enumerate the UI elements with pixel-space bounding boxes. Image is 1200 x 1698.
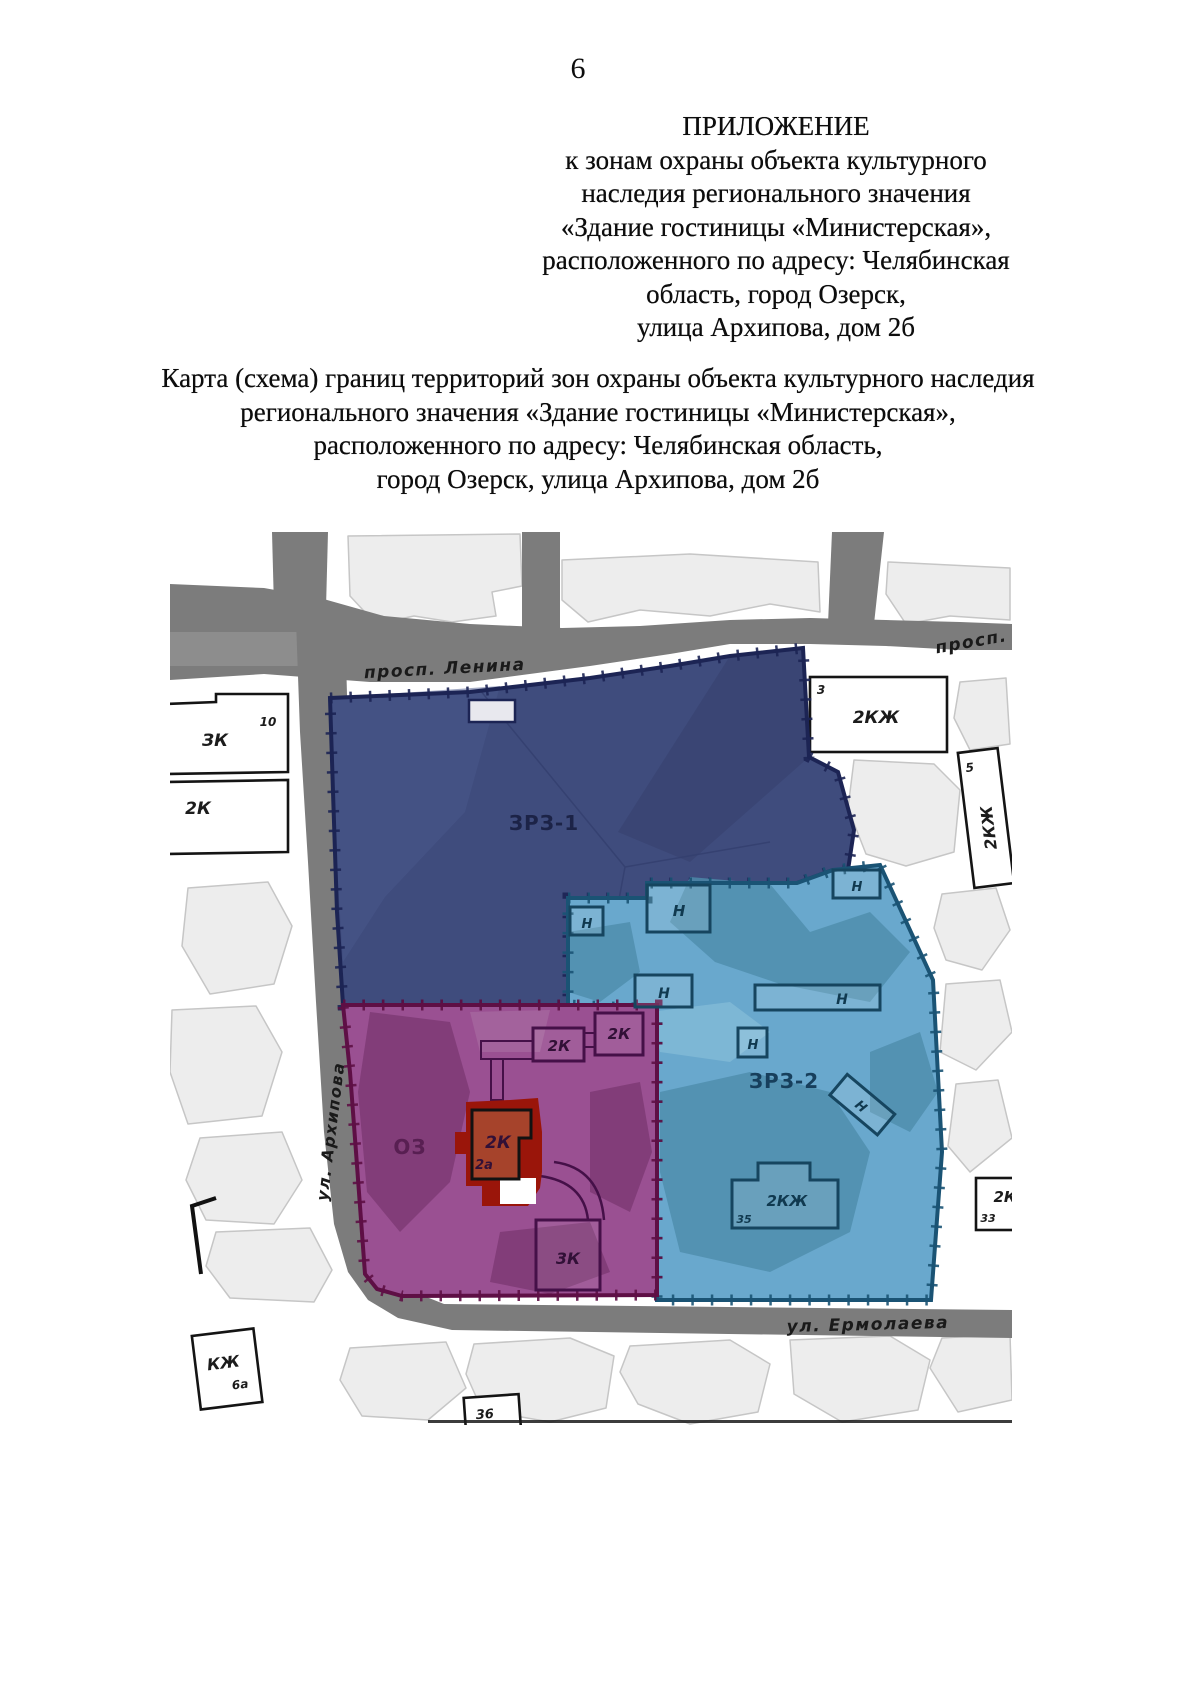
map-edge-line bbox=[428, 1420, 1012, 1423]
appendix-line: расположенного по адресу: Челябинская bbox=[540, 244, 1012, 278]
building-number: 5 bbox=[965, 760, 975, 775]
building-label: Н bbox=[852, 880, 863, 895]
building-3k-left bbox=[170, 694, 288, 774]
zone-label-zrz1: ЗРЗ-1 bbox=[509, 811, 579, 835]
appendix-line: улица Архипова, дом 2б bbox=[540, 311, 1012, 345]
building-label: 2К bbox=[608, 1025, 631, 1043]
building-label: 2КЖ bbox=[993, 1188, 1012, 1206]
boundary-building bbox=[469, 700, 515, 722]
appendix-line: ПРИЛОЖЕНИЕ bbox=[540, 110, 1012, 144]
building-label: 2КЖ bbox=[766, 1192, 808, 1210]
street-label-ermolaeva: ул. Ермолаева bbox=[786, 1313, 949, 1337]
object-label: 2К bbox=[485, 1133, 512, 1153]
caption-line: регионального значения «Здание гостиницы… bbox=[93, 396, 1103, 430]
appendix-heading: ПРИЛОЖЕНИЕ к зонам охраны объекта культу… bbox=[540, 110, 1012, 345]
caption-line: расположенного по адресу: Челябинская об… bbox=[93, 429, 1103, 463]
object-house-number: 2а bbox=[475, 1158, 493, 1173]
building-label: КЖ bbox=[206, 1351, 241, 1374]
building-label: 3К bbox=[556, 1249, 581, 1268]
appendix-line: область, город Озерск, bbox=[540, 278, 1012, 312]
caption-line: город Озерск, улица Архипова, дом 2б bbox=[93, 463, 1103, 497]
building-label: 2КЖ bbox=[853, 708, 901, 728]
building-label: Н bbox=[748, 1038, 759, 1053]
building-label: ЗК bbox=[201, 731, 229, 751]
zone-map: ЗК 10 2К 2КЖ 3 5 2КЖ 2КЖ 33 КЖ 6а 3 bbox=[170, 532, 1012, 1425]
building-number: 35 bbox=[736, 1213, 752, 1226]
page-number: 6 bbox=[558, 52, 598, 86]
zone-label-zrz2: ЗРЗ-2 bbox=[749, 1069, 819, 1093]
building-label: Н bbox=[836, 992, 848, 1008]
road-stub-b bbox=[522, 532, 560, 632]
document-page: 6 ПРИЛОЖЕНИЕ к зонам охраны объекта куль… bbox=[0, 0, 1200, 1698]
building-label: Н bbox=[658, 986, 670, 1002]
object-notch bbox=[500, 1178, 536, 1204]
building-number: 6а bbox=[231, 1377, 249, 1393]
appendix-line: наследия регионального значения bbox=[540, 177, 1012, 211]
building-label: 2К bbox=[548, 1037, 571, 1055]
building-label: 2К bbox=[185, 799, 212, 819]
appendix-line: «Здание гостиницы «Министерская», bbox=[540, 211, 1012, 245]
road-stub-a bbox=[272, 532, 328, 608]
building-label: Н bbox=[673, 902, 686, 920]
building-number: 3 bbox=[817, 683, 825, 697]
building-kzh-6a: КЖ 6а bbox=[192, 1328, 263, 1409]
building-number: 10 bbox=[260, 715, 277, 729]
caption-line: Карта (схема) границ территорий зон охра… bbox=[93, 362, 1103, 396]
building-label: Н bbox=[582, 917, 593, 932]
appendix-line: к зонам охраны объекта культурного bbox=[540, 144, 1012, 178]
zone-label-oz: ОЗ bbox=[393, 1135, 426, 1159]
map-caption: Карта (схема) границ территорий зон охра… bbox=[93, 362, 1103, 496]
building-n bbox=[755, 985, 880, 1010]
building-number: 33 bbox=[980, 1212, 996, 1225]
